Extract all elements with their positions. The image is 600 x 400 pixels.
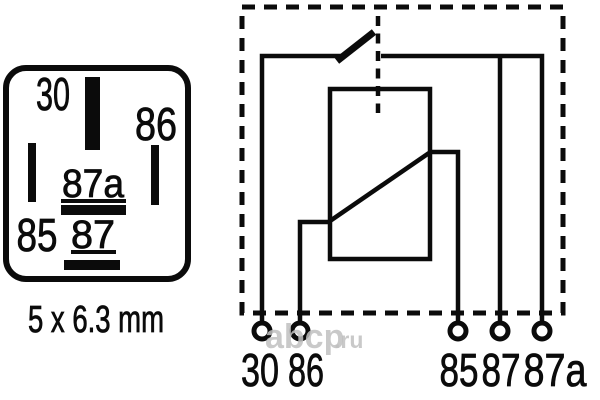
terminal-85-ring xyxy=(450,323,466,339)
watermark-name: abcp xyxy=(265,318,344,356)
pin-30-label: 30 xyxy=(36,68,70,120)
watermark: abcp .ru xyxy=(265,318,363,356)
pin-85-label: 85 xyxy=(17,209,58,261)
pin-30-blade xyxy=(85,77,100,150)
pinout-diagram: 30 86 85 87a 87 5 x 6.3 mm xyxy=(6,68,188,341)
wire-terminal-86 xyxy=(300,222,330,322)
coil-diagonal xyxy=(330,153,429,221)
relay-diagram-svg: 30 86 85 87a 87 5 x 6.3 mm xyxy=(0,0,600,400)
relay-housing-dashed-border xyxy=(242,7,563,313)
wire-terminal-85 xyxy=(430,152,458,322)
switch-blade xyxy=(337,32,374,61)
pin-86-label: 86 xyxy=(135,98,177,150)
terminal-85-label: 85 xyxy=(440,344,479,396)
terminal-87-label: 87 xyxy=(482,344,521,396)
pin-87-label: 87 xyxy=(71,213,115,257)
terminal-87a-ring xyxy=(534,323,550,339)
blade-size-label: 5 x 6.3 mm xyxy=(28,299,164,341)
pin-86-blade xyxy=(151,145,159,205)
pin-87-blade xyxy=(64,260,120,270)
terminal-87-ring xyxy=(492,323,508,339)
pin-87a-label: 87a xyxy=(62,162,125,206)
watermark-tld: .ru xyxy=(334,327,363,353)
relay-diagram-image: 30 86 85 87a 87 5 x 6.3 mm xyxy=(0,0,600,400)
pin-85-blade xyxy=(28,143,36,202)
wire-terminal-87a xyxy=(381,56,542,322)
coil-box xyxy=(330,89,430,259)
terminal-87a-label: 87a xyxy=(524,344,587,396)
